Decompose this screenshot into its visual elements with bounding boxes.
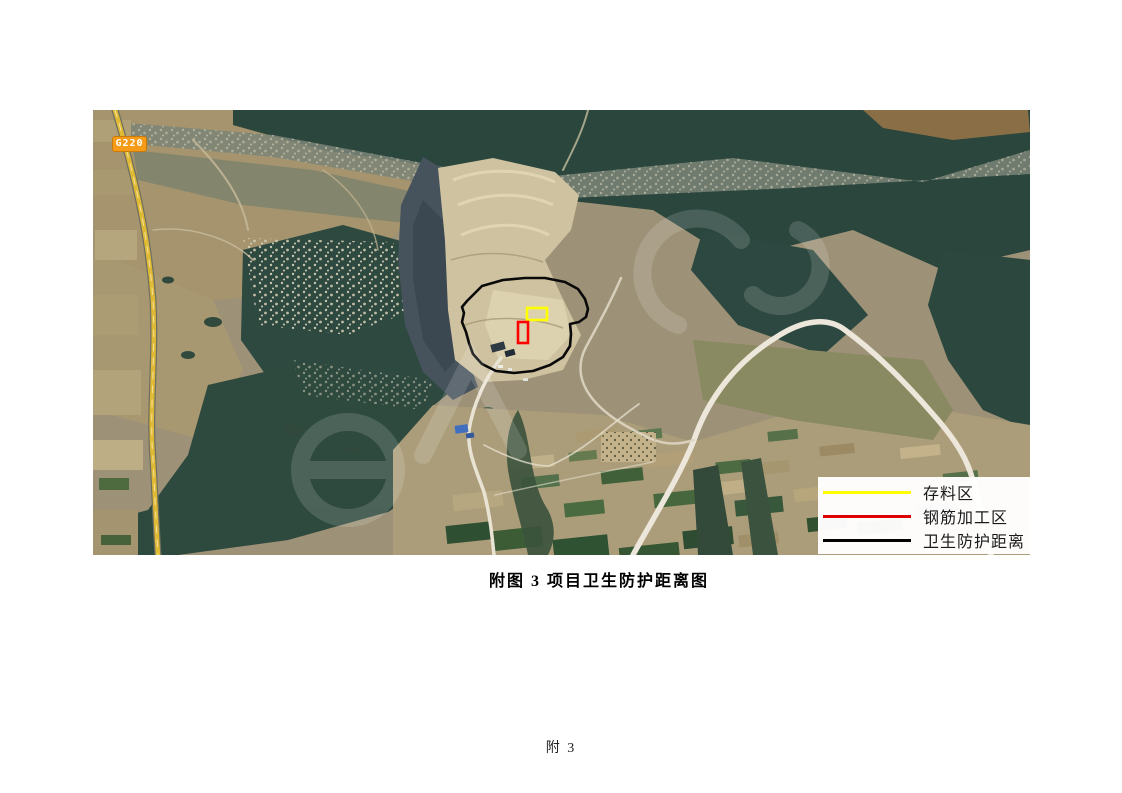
- legend-item-protection: 卫生防护距离: [818, 528, 1030, 552]
- legend-black-line-icon: [823, 539, 911, 542]
- map-legend: 存料区 钢筋加工区 卫生防护距离: [818, 477, 1030, 554]
- legend-item-rebar: 钢筋加工区: [818, 504, 1030, 528]
- legend-label: 钢筋加工区: [923, 504, 1008, 528]
- legend-item-storage: 存料区: [818, 480, 1030, 504]
- legend-red-line-icon: [823, 515, 911, 518]
- page-number: 附 3: [0, 737, 1122, 757]
- figure-caption: 附图 3 项目卫生防护距离图: [0, 567, 1122, 591]
- legend-label: 存料区: [923, 480, 974, 504]
- legend-yellow-line-icon: [823, 491, 911, 494]
- document-page: G220 存料区 钢筋加工区 卫生防护距离 附图 3 项目卫生防护距离图 附 3: [0, 0, 1122, 793]
- legend-label: 卫生防护距离: [923, 528, 1025, 552]
- road-badge-g220: G220: [112, 136, 147, 152]
- satellite-map-figure: G220 存料区 钢筋加工区 卫生防护距离: [93, 110, 1030, 555]
